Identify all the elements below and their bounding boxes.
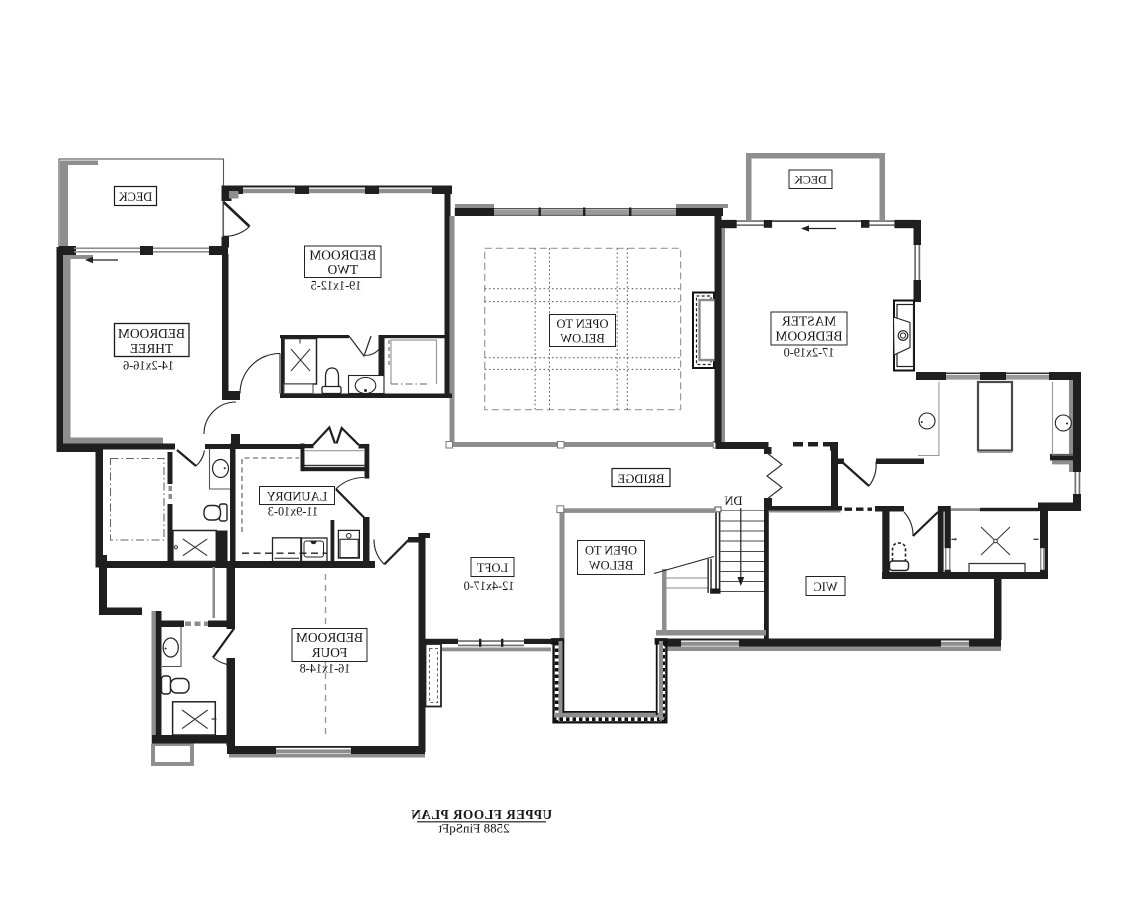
svg-text:TWO: TWO bbox=[327, 262, 358, 277]
svg-text:17-2x19-0: 17-2x19-0 bbox=[784, 346, 835, 360]
svg-text:OPEN TO: OPEN TO bbox=[585, 544, 637, 558]
svg-text:BEDROOM: BEDROOM bbox=[309, 248, 376, 263]
svg-text:LOFT: LOFT bbox=[477, 561, 509, 575]
svg-text:12-4x17-0: 12-4x17-0 bbox=[464, 579, 515, 593]
svg-text:BEDROOM: BEDROOM bbox=[118, 326, 185, 341]
svg-text:BEDROOM: BEDROOM bbox=[775, 329, 842, 344]
svg-text:MASTER: MASTER bbox=[782, 314, 836, 329]
svg-text:14-2x16-6: 14-2x16-6 bbox=[123, 359, 174, 373]
svg-text:BEDROOM: BEDROOM bbox=[296, 630, 363, 645]
svg-text:DECK: DECK bbox=[119, 190, 153, 204]
svg-text:THREE: THREE bbox=[130, 341, 173, 356]
svg-text:DECK: DECK bbox=[794, 173, 827, 187]
svg-text:2588 FinSqFt: 2588 FinSqFt bbox=[438, 821, 510, 836]
svg-text:LAUNDRY: LAUNDRY bbox=[267, 490, 327, 504]
svg-text:BELOW: BELOW bbox=[560, 332, 605, 346]
svg-text:19-1x12-5: 19-1x12-5 bbox=[311, 279, 362, 293]
svg-text:16-1x14-8: 16-1x14-8 bbox=[300, 662, 351, 676]
svg-text:OPEN TO: OPEN TO bbox=[557, 317, 609, 331]
svg-text:DN: DN bbox=[724, 494, 742, 508]
svg-text:FOUR: FOUR bbox=[312, 645, 348, 660]
svg-text:WIC: WIC bbox=[813, 580, 837, 594]
svg-text:BELOW: BELOW bbox=[589, 559, 634, 573]
svg-text:11-9x10-3: 11-9x10-3 bbox=[268, 505, 318, 519]
svg-text:BRIDGE: BRIDGE bbox=[617, 472, 664, 486]
